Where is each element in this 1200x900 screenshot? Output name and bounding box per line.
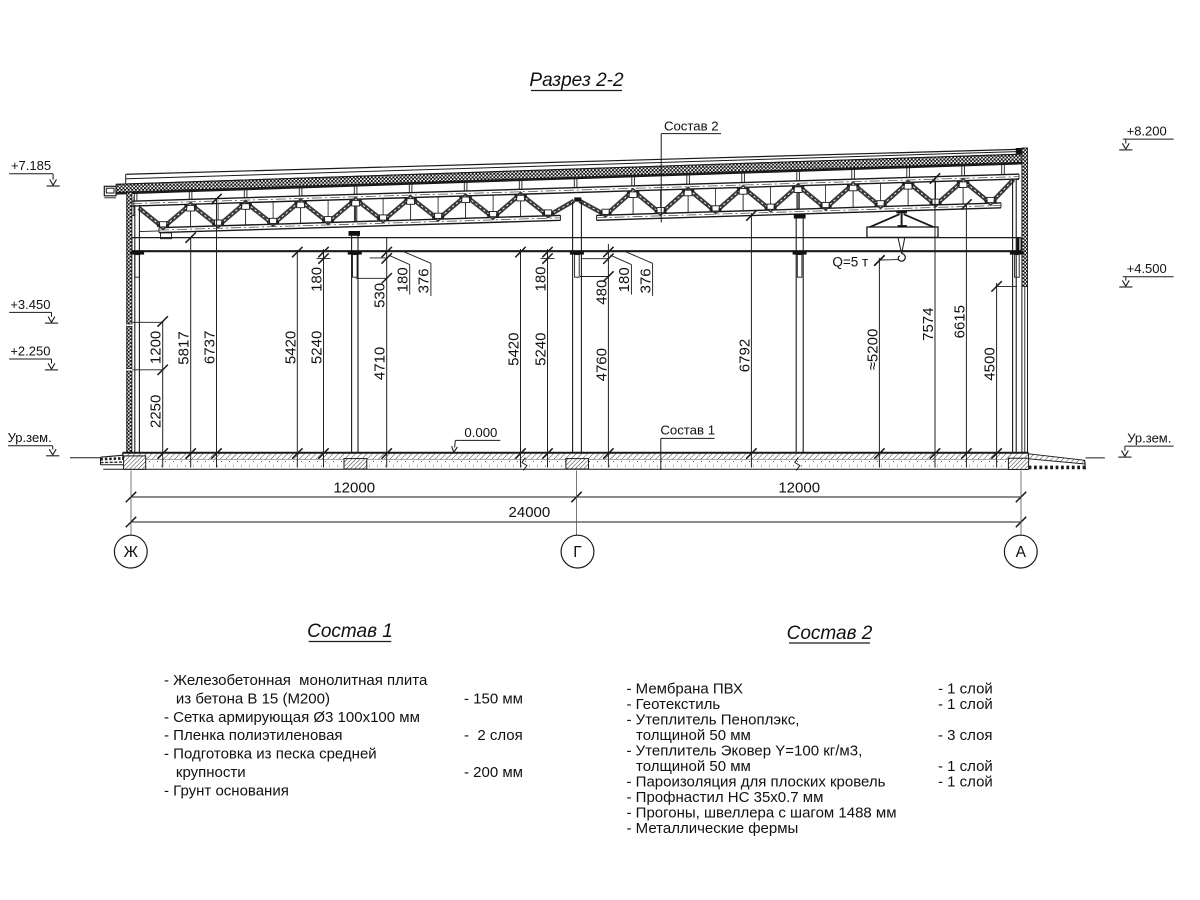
svg-text:- Утеплитель Пеноплэкс,: - Утеплитель Пеноплэкс, [627,712,800,729]
svg-text:6737: 6737 [202,331,219,364]
svg-text:0.000: 0.000 [464,425,497,440]
svg-text:5420: 5420 [506,333,523,366]
svg-text:5240: 5240 [309,331,326,364]
svg-text:180: 180 [616,267,633,292]
svg-text:А: А [1016,544,1027,561]
svg-text:- 1 слой: - 1 слой [938,758,993,775]
svg-text:376: 376 [637,268,654,293]
svg-text:- 1 слой: - 1 слой [938,696,993,713]
svg-text:4500: 4500 [982,347,999,380]
svg-text:- 200 мм: - 200 мм [464,764,523,781]
svg-text:- Железобетонная монолитная п: - Железобетонная монолитная плита [164,672,428,689]
svg-text:- 2 слоя: - 2 слоя [464,727,523,744]
svg-text:6792: 6792 [736,339,753,372]
svg-text:≈5200: ≈5200 [864,329,881,371]
svg-text:180: 180 [309,267,326,292]
svg-text:из бетона В 15 (М200): из бетона В 15 (М200) [176,690,330,707]
svg-text:Состав 2: Состав 2 [664,119,719,134]
svg-text:- Профнастил НС 35х0.7 мм: - Профнастил НС 35х0.7 мм [627,789,824,806]
svg-text:+2.250: +2.250 [10,343,50,358]
svg-text:- Геотекстиль: - Геотекстиль [627,696,721,713]
svg-text:Ур.зем.: Ур.зем. [8,430,52,445]
svg-text:Состав 1: Состав 1 [660,423,715,438]
svg-text:- 3 слоя: - 3 слоя [938,727,993,744]
svg-text:- Грунт основания: - Грунт основания [164,782,289,799]
svg-text:+7.185: +7.185 [11,158,51,173]
svg-text:180: 180 [395,267,412,292]
svg-text:+8.200: +8.200 [1127,124,1167,139]
svg-text:- Утеплитель Эковер Y=100 кг/м: - Утеплитель Эковер Y=100 кг/м3, [627,743,863,760]
svg-text:12000: 12000 [778,480,820,497]
svg-text:- 1 слой: - 1 слой [938,774,993,791]
svg-text:+4.500: +4.500 [1127,261,1167,276]
svg-text:Ж: Ж [124,544,139,561]
svg-text:2250: 2250 [148,395,165,428]
svg-text:толщиной 50 мм: толщиной 50 мм [636,758,751,775]
svg-text:180: 180 [533,266,550,291]
svg-text:- 1 слой: - 1 слой [938,681,993,698]
svg-text:5817: 5817 [176,331,193,364]
svg-text:530: 530 [372,283,389,308]
svg-text:Ур.зем.: Ур.зем. [1127,431,1171,446]
svg-text:Состав 1: Состав 1 [307,621,393,642]
svg-text:1200: 1200 [148,331,165,364]
svg-text:- Пароизоляция для плоских кро: - Пароизоляция для плоских кровель [627,774,886,791]
svg-text:6615: 6615 [951,305,968,338]
svg-text:4710: 4710 [372,347,389,380]
svg-text:5240: 5240 [533,333,550,366]
svg-text:24000: 24000 [509,504,551,521]
svg-text:376: 376 [416,268,433,293]
svg-text:7574: 7574 [920,308,937,341]
svg-text:- Мембрана ПВХ: - Мембрана ПВХ [627,681,744,698]
svg-text:крупности: крупности [176,764,246,781]
svg-text:12000: 12000 [333,480,375,497]
svg-text:- Пленка полиэтиленовая: - Пленка полиэтиленовая [164,727,343,744]
svg-text:+3.450: +3.450 [10,297,50,312]
svg-text:- Металлические фермы: - Металлические фермы [627,820,799,837]
svg-text:- Подготовка из песка средней: - Подготовка из песка средней [164,746,377,763]
svg-text:Разрез 2-2: Разрез 2-2 [529,70,624,91]
svg-text:4760: 4760 [593,348,610,381]
svg-text:Состав 2: Состав 2 [787,623,873,644]
svg-text:- 150 мм: - 150 мм [464,690,523,707]
svg-text:- Сетка армирующая Ø3 100х100: - Сетка армирующая Ø3 100х100 мм [164,709,420,726]
svg-text:толщиной 50 мм: толщиной 50 мм [636,727,751,744]
svg-text:Q=5 т: Q=5 т [832,255,868,270]
svg-text:480: 480 [593,280,610,305]
svg-text:5420: 5420 [282,331,299,364]
svg-text:- Прогоны, швеллера с шагом 14: - Прогоны, швеллера с шагом 1488 мм [627,805,897,822]
svg-text:Г: Г [573,544,582,561]
